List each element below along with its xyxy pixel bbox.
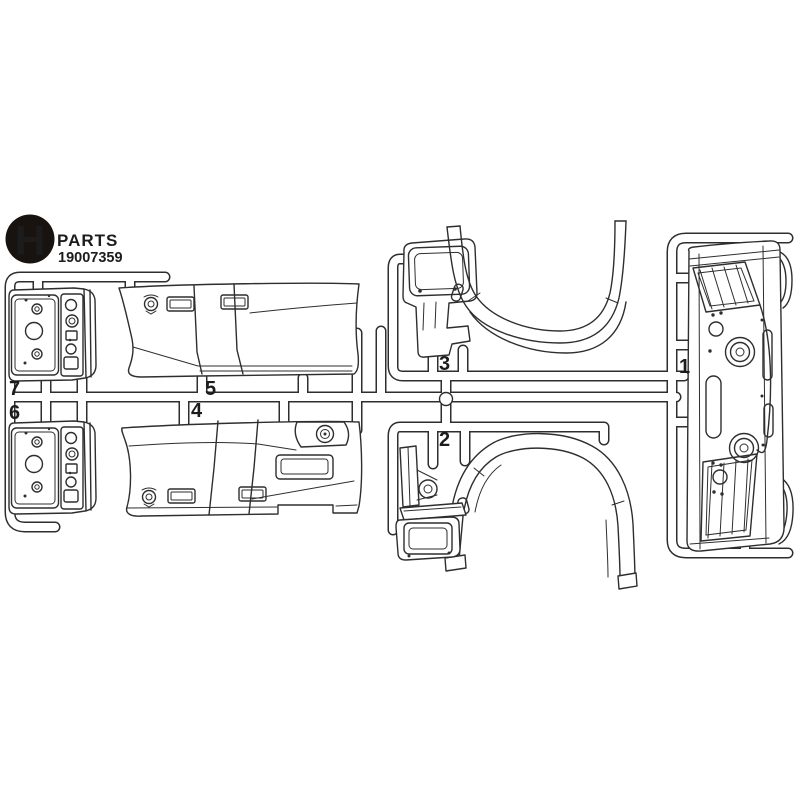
part-2-label: 2 [439,429,450,451]
part-6-label: 6 [9,402,20,424]
part-1-front-panel [687,241,793,551]
part-3-label: 3 [439,353,450,375]
part-5-side-skirt-panel [119,283,359,377]
part-3-wheel-arch [403,221,626,357]
part-6-headlight-unit [9,421,96,514]
parts-diagram-sheet: 1 2 3 4 5 6 7 H PARTS 19007359 [0,0,800,800]
part-1-label: 1 [679,356,690,378]
sheet-logo: H PARTS 19007359 [6,215,123,267]
part-5-label: 5 [205,378,216,400]
sheet-word: PARTS [57,231,118,250]
item-code: 19007359 [58,250,123,266]
sheet-letter: H [15,217,45,264]
part-4-label: 4 [191,400,203,422]
runner-junction-boss [440,393,453,406]
part-4-side-skirt-panel [122,420,362,516]
part-7-label: 7 [9,378,20,400]
